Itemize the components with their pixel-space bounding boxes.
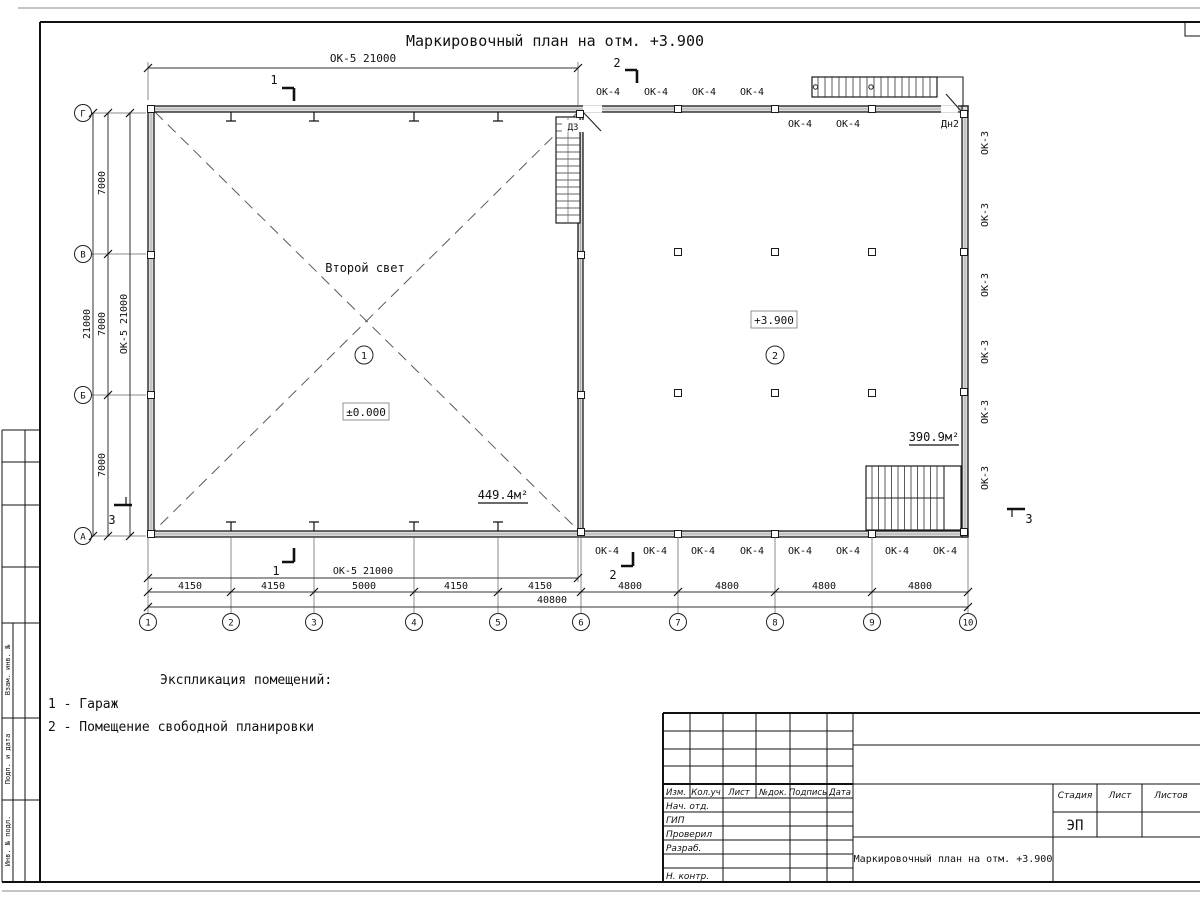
- ok3-label: ОК-3: [980, 131, 991, 155]
- ok4-label: ОК-4: [933, 546, 957, 557]
- ok4-label: ОК-4: [788, 546, 812, 557]
- ok4-label: ОК-4: [788, 119, 812, 130]
- title-block: Изм. Кол.уч Лист №док. Подпись Дата Нач.…: [663, 713, 1200, 882]
- dim-bay-6: 4800: [618, 581, 642, 592]
- dim-bay-7: 4800: [715, 581, 739, 592]
- dim-bottom-ok5: ОК-5 21000: [333, 566, 393, 577]
- tb-stage-value: ЭП: [1067, 818, 1084, 834]
- plan-canvas: Взам. инв. № Подп. и дата Инв. № подл. М…: [0, 0, 1200, 900]
- ok3-label: ОК-3: [980, 400, 991, 424]
- axis-row-v: В: [80, 251, 85, 261]
- level-r2: +3.900: [754, 314, 794, 327]
- dim-bay-3: 5000: [352, 581, 376, 592]
- axis-row-b: Б: [80, 392, 85, 402]
- ok4-label: ОК-4: [692, 87, 716, 98]
- axis-col-2: 2: [228, 619, 233, 629]
- dim-bay-8: 4800: [812, 581, 836, 592]
- legend-item-2: 2 - Помещение свободной планировки: [48, 720, 314, 735]
- level-r1: ±0.000: [346, 406, 386, 419]
- dim-bay-5: 4150: [528, 581, 552, 592]
- dimensions-left: 7000 7000 7000 21000 ОК-5 21000 Г В Б А: [75, 105, 147, 545]
- dim-bay-4: 4150: [444, 581, 468, 592]
- dim-bay-9: 4800: [908, 581, 932, 592]
- tb-row-gip: ГИП: [666, 816, 685, 826]
- tb-col-koluch: Кол.уч: [691, 788, 720, 798]
- ok4-label: ОК-4: [643, 546, 667, 557]
- axis-col-5: 5: [495, 619, 500, 629]
- legend-item-1: 1 - Гараж: [48, 697, 119, 712]
- tb-row-nachotd: Нач. отд.: [666, 802, 709, 812]
- frame-label-podp: Подп. и дата: [4, 734, 12, 785]
- door-opening-d3: [583, 106, 602, 113]
- dim-top-ok5: ОК-5 21000: [330, 52, 396, 65]
- legend-heading: Экспликация помещений:: [160, 673, 332, 688]
- tb-row-proveril: Проверил: [666, 830, 712, 840]
- axis-col-10: 10: [963, 619, 974, 629]
- tb-list-label: Лист: [1108, 791, 1133, 801]
- axis-col-3: 3: [311, 619, 316, 629]
- ok4-label: ОК-4: [644, 87, 668, 98]
- ok4-label: ОК-4: [885, 546, 909, 557]
- frame-corner-box: [1185, 22, 1200, 36]
- ok4-label: ОК-4: [836, 119, 860, 130]
- ok4-label: ОК-4: [596, 87, 620, 98]
- tb-listov-label: Листов: [1153, 791, 1188, 801]
- tb-col-izm: Изм.: [666, 788, 686, 798]
- sheet-frame: Взам. инв. № Подп. и дата Инв. № подл.: [2, 8, 1200, 891]
- frame-label-inv: Инв. № подл.: [4, 816, 12, 867]
- floor-plan: [148, 77, 969, 538]
- axis-col-6: 6: [578, 619, 583, 629]
- dim-left-ok5: ОК-5 21000: [119, 294, 130, 354]
- axis-col-7: 7: [675, 619, 680, 629]
- room-1-number: 1: [361, 351, 367, 362]
- axis-col-4: 4: [411, 619, 416, 629]
- dim-bay-1: 4150: [178, 581, 202, 592]
- frame-border: [2, 22, 1200, 882]
- legend: Экспликация помещений: 1 - Гараж 2 - Пом…: [48, 673, 332, 735]
- ok3-label: ОК-3: [980, 340, 991, 364]
- tb-stage-label: Стадия: [1058, 791, 1093, 801]
- tb-doc-title: Маркировочный план на отм. +3.900: [854, 853, 1053, 865]
- door-leaf-d3: [583, 112, 601, 131]
- axis-bubbles-bottom: 1 2 3 4 5 6 7 8 9 10: [140, 614, 977, 631]
- door-opening-dn2: [941, 106, 958, 113]
- axis-row-g: Г: [80, 110, 85, 120]
- tb-col-podpis: Подпись: [789, 788, 827, 798]
- void-cross: [155, 112, 578, 530]
- paper-edge: [2, 8, 1200, 891]
- dim-left-21000: 21000: [82, 309, 93, 339]
- tb-col-ndok: №док.: [758, 788, 787, 798]
- drawing-sheet: Взам. инв. № Подп. и дата Инв. № подл. М…: [0, 0, 1200, 900]
- area-r2: 390.9м²: [909, 430, 960, 444]
- room-2-number: 2: [772, 351, 778, 362]
- frame-label-vzam: Взам. инв. №: [4, 644, 12, 695]
- column-t-marks: [226, 112, 503, 531]
- axis-col-8: 8: [772, 619, 777, 629]
- section-2-top: 2: [613, 56, 620, 70]
- section-1-top: 1: [270, 73, 277, 87]
- tb-col-data: Дата: [828, 788, 851, 798]
- ok4-label: ОК-4: [740, 87, 764, 98]
- section-2-bottom: 2: [609, 568, 616, 582]
- axis-col-1: 1: [145, 619, 150, 629]
- tb-row-nkontr: Н. контр.: [666, 872, 709, 882]
- dim-total-40800: 40800: [537, 595, 567, 606]
- ok4-label: ОК-4: [595, 546, 619, 557]
- ok3-label: ОК-3: [980, 203, 991, 227]
- room-annotations: Второй свет 1 ±0.000 449.4м² 2 +3.900 39…: [325, 261, 959, 503]
- second-light-note: Второй свет: [325, 261, 404, 275]
- dim-left-7000-b: 7000: [97, 312, 108, 336]
- tb-row-razrab: Разраб.: [666, 844, 701, 854]
- ok3-label: ОК-3: [980, 466, 991, 490]
- ok4-label: ОК-4: [740, 546, 764, 557]
- dimensions-top: ОК-5 21000: [144, 52, 582, 106]
- dim-bay-2: 4150: [261, 581, 285, 592]
- page-title: Маркировочный план на отм. +3.900: [406, 32, 704, 50]
- landing: [937, 77, 963, 106]
- section-3-right: 3: [1025, 512, 1032, 526]
- stair-external-top: [812, 77, 963, 106]
- axis-col-9: 9: [869, 619, 874, 629]
- stair-bottom-right: [866, 466, 961, 530]
- section-1-bottom: 1: [272, 564, 279, 578]
- dim-left-7000-c: 7000: [97, 453, 108, 477]
- ok3-label: ОК-3: [980, 273, 991, 297]
- section-3-left: 3: [108, 513, 115, 527]
- ok4-label: ОК-4: [836, 546, 860, 557]
- tb-col-list: Лист: [727, 788, 751, 798]
- axis-row-a: А: [80, 533, 86, 543]
- area-r1: 449.4м²: [478, 488, 529, 502]
- dn2-label: Дн2: [941, 119, 959, 130]
- ok4-label: ОК-4: [691, 546, 715, 557]
- d3-label: Д3: [568, 123, 579, 133]
- dim-left-7000-a: 7000: [97, 171, 108, 195]
